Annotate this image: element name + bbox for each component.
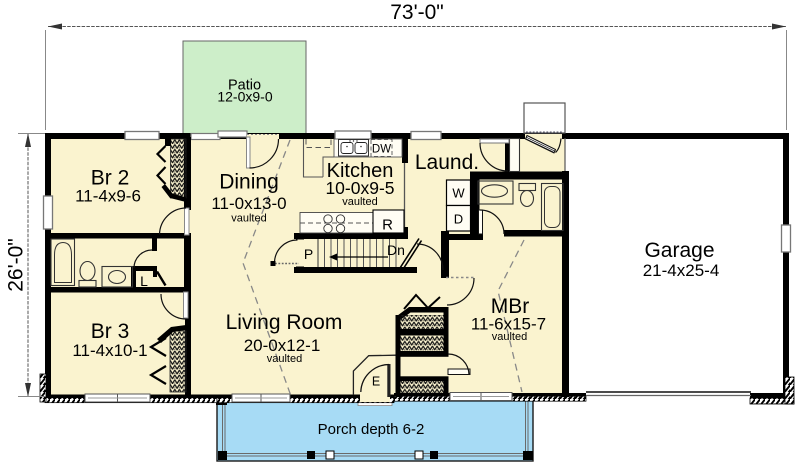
svg-text:Br 3: Br 3 xyxy=(91,320,130,343)
svg-text:Garage: Garage xyxy=(644,239,714,262)
svg-text:Living Room: Living Room xyxy=(226,311,343,334)
svg-text:Dining: Dining xyxy=(219,171,279,194)
svg-text:vaulted: vaulted xyxy=(492,331,527,343)
svg-text:Dn: Dn xyxy=(387,242,405,258)
svg-text:L: L xyxy=(140,273,148,289)
svg-text:10-0x9-5: 10-0x9-5 xyxy=(325,178,394,198)
svg-text:Porch depth 6-2: Porch depth 6-2 xyxy=(318,421,425,438)
svg-text:W: W xyxy=(452,186,465,201)
svg-text:11-4x10-1: 11-4x10-1 xyxy=(72,341,147,360)
svg-text:D: D xyxy=(454,212,463,227)
svg-text:vaulted: vaulted xyxy=(342,196,377,208)
svg-text:DW: DW xyxy=(372,144,391,156)
svg-text:11-4x9-6: 11-4x9-6 xyxy=(75,187,141,206)
svg-text:21-4x25-4: 21-4x25-4 xyxy=(643,261,720,280)
svg-text:26'-0": 26'-0" xyxy=(5,238,28,292)
svg-text:vaulted: vaulted xyxy=(267,353,302,365)
svg-text:11-0x13-0: 11-0x13-0 xyxy=(211,194,286,213)
svg-text:73'-0": 73'-0" xyxy=(390,1,444,24)
svg-text:vaulted: vaulted xyxy=(231,213,266,225)
svg-text:P: P xyxy=(304,246,313,262)
svg-text:Laund.: Laund. xyxy=(415,151,479,174)
svg-text:E: E xyxy=(372,375,380,389)
svg-text:R: R xyxy=(382,217,393,234)
svg-text:12-0x9-0: 12-0x9-0 xyxy=(217,89,272,105)
